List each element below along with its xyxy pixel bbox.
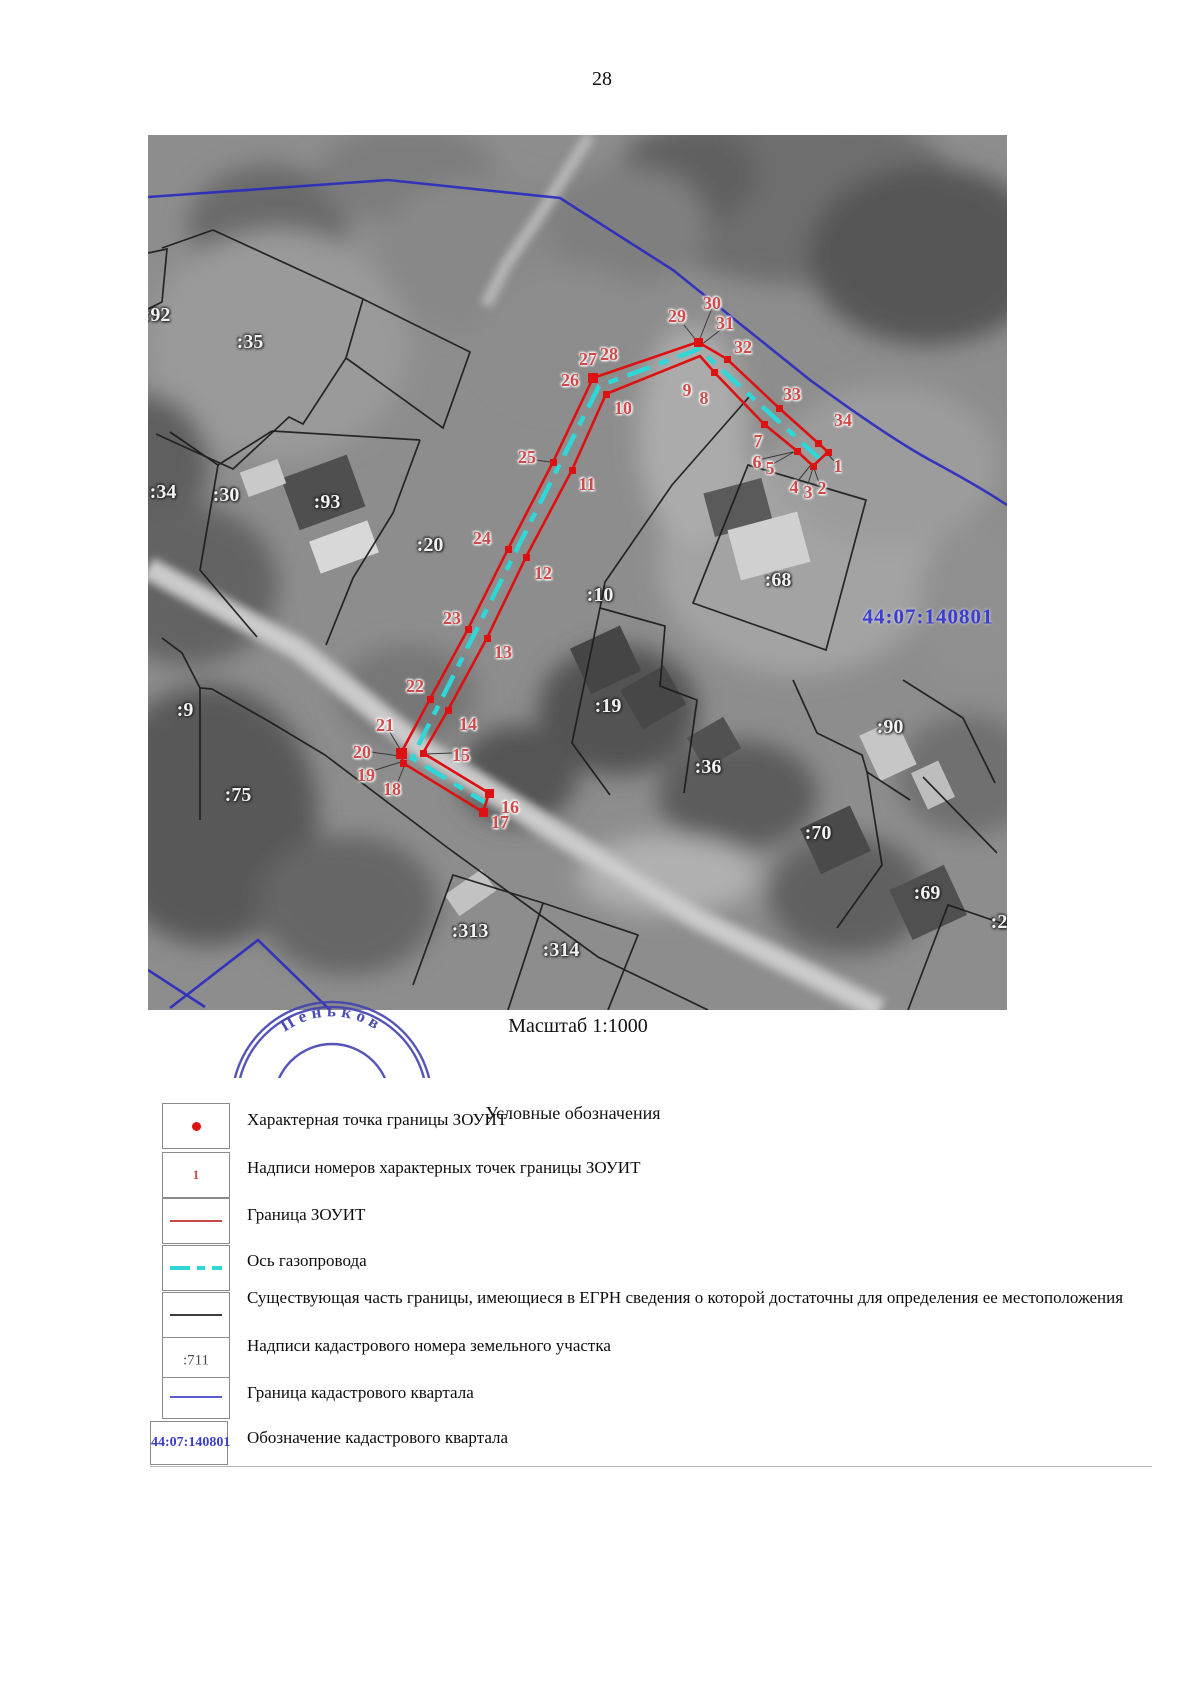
boundary-point-number-label: 29 — [668, 307, 686, 325]
boundary-point-number-label: 27 — [579, 350, 597, 368]
boundary-point-number-label: 7 — [754, 432, 763, 450]
black-line-icon — [170, 1314, 222, 1316]
legend-item-label: Граница кадастрового квартала — [247, 1381, 474, 1405]
boundary-point-number-label: 21 — [376, 716, 394, 734]
legend-item-label: Обозначение кадастрового квартала — [247, 1426, 508, 1450]
parcel-number-label: :90 — [877, 717, 904, 737]
boundary-point-number-label: 32 — [734, 338, 752, 356]
blue-line-icon — [170, 1396, 222, 1398]
boundary-point-number-label: 26 — [561, 371, 579, 389]
parcel-number-label: :75 — [225, 785, 252, 805]
stamp-text: Пеньков — [277, 1001, 388, 1035]
legend-item-label: Граница ЗОУИТ — [247, 1203, 365, 1227]
boundary-point-number-label: 1 — [834, 457, 843, 475]
boundary-point-number-label: 13 — [494, 643, 512, 661]
parcel-number-label: :10 — [587, 585, 614, 605]
legend-item-label: Надписи кадастрового номера земельного у… — [247, 1334, 611, 1358]
boundary-point-number-label: 2 — [818, 479, 827, 497]
boundary-point-number-label: 4 — [790, 478, 799, 496]
legend-symbol-gas-axis — [162, 1245, 230, 1291]
boundary-point-number-label: 11 — [578, 475, 595, 493]
svg-text:Пеньков: Пеньков — [277, 1001, 388, 1035]
point-number-sample: 1 — [163, 1167, 229, 1183]
legend-title: Условные обозначения — [485, 1103, 660, 1124]
parcel-number-label: :34 — [150, 482, 177, 502]
parcel-number-label: :68 — [765, 570, 792, 590]
legend-item-label: Надписи номеров характерных точек границ… — [247, 1156, 640, 1180]
boundary-point-number-label: 24 — [473, 529, 491, 547]
parcel-number-label: :26 — [991, 912, 1007, 932]
legend-symbol-quarter-number: 44:07:140801 — [150, 1421, 228, 1465]
boundary-point-number-label: 34 — [834, 411, 852, 429]
boundary-point-number-label: 20 — [353, 743, 371, 761]
boundary-point-number-label: 28 — [600, 345, 618, 363]
boundary-point-number-label: 17 — [491, 813, 509, 831]
boundary-point-number-label: 3 — [804, 483, 813, 501]
document-page: 28 — [0, 0, 1200, 1697]
boundary-point-number-label: 22 — [406, 677, 424, 695]
legend-symbol-zouit-boundary — [162, 1198, 230, 1244]
parcel-number-label: :30 — [213, 485, 240, 505]
legend-symbol-zouit-point — [162, 1103, 230, 1149]
parcel-number-sample: :711 — [163, 1353, 229, 1370]
boundary-point-number-label: 23 — [443, 609, 461, 627]
legend-symbol-point-number: 1 — [162, 1152, 230, 1198]
boundary-point-number-label: 5 — [766, 459, 775, 477]
legend-item-label: Существующая часть границы, имеющиеся в … — [247, 1286, 1152, 1310]
legend-item-label: Характерная точка границы ЗОУИТ — [247, 1108, 507, 1132]
red-point-icon — [192, 1122, 201, 1131]
boundary-point-number-label: 19 — [357, 766, 375, 784]
red-line-icon — [170, 1220, 222, 1222]
page-number: 28 — [592, 68, 612, 91]
cyan-dashed-line-icon — [170, 1266, 222, 1270]
map-scale-caption: Масштаб 1:1000 — [508, 1015, 648, 1038]
legend-item-label: Ось газопровода — [247, 1249, 367, 1273]
legend-symbol-quarter-boundary — [162, 1377, 230, 1419]
boundary-point-number-label: 14 — [459, 715, 477, 733]
map-canvas — [148, 135, 1007, 1010]
cadastral-map: :92:35:34:30:93:20:10:68:19:36:90:70:69:… — [148, 135, 1007, 1010]
boundary-point-number-label: 33 — [783, 385, 801, 403]
boundary-point-number-label: 15 — [452, 746, 470, 764]
parcel-number-label: :9 — [177, 700, 194, 720]
boundary-point-number-label: 12 — [534, 564, 552, 582]
terrain-texture — [148, 135, 1007, 1010]
boundary-point-number-label: 6 — [753, 453, 762, 471]
boundary-point-number-label: 9 — [683, 381, 692, 399]
boundary-point-number-label: 8 — [700, 389, 709, 407]
round-stamp: Пеньков — [210, 975, 470, 1078]
parcel-number-label: :19 — [595, 696, 622, 716]
parcel-number-label: :93 — [314, 492, 341, 512]
legend-symbol-existing-boundary — [162, 1292, 230, 1338]
parcel-number-label: :70 — [805, 823, 832, 843]
quarter-number-sample: 44:07:140801 — [151, 1435, 227, 1451]
parcel-number-label: :36 — [695, 757, 722, 777]
parcel-number-label: :69 — [914, 883, 941, 903]
parcel-number-label: :92 — [148, 305, 170, 325]
parcel-number-label: :20 — [417, 535, 444, 555]
boundary-point-number-label: 25 — [518, 448, 536, 466]
parcel-number-label: :35 — [237, 332, 264, 352]
parcel-number-label: :313 — [452, 921, 489, 941]
boundary-point-number-label: 31 — [716, 314, 734, 332]
boundary-point-number-label: 30 — [703, 294, 721, 312]
boundary-point-number-label: 18 — [383, 780, 401, 798]
boundary-point-number-label: 10 — [614, 399, 632, 417]
legend-divider — [150, 1466, 1152, 1467]
parcel-number-label: :314 — [543, 940, 580, 960]
quarter-number-label: 44:07:140801 — [863, 607, 994, 628]
